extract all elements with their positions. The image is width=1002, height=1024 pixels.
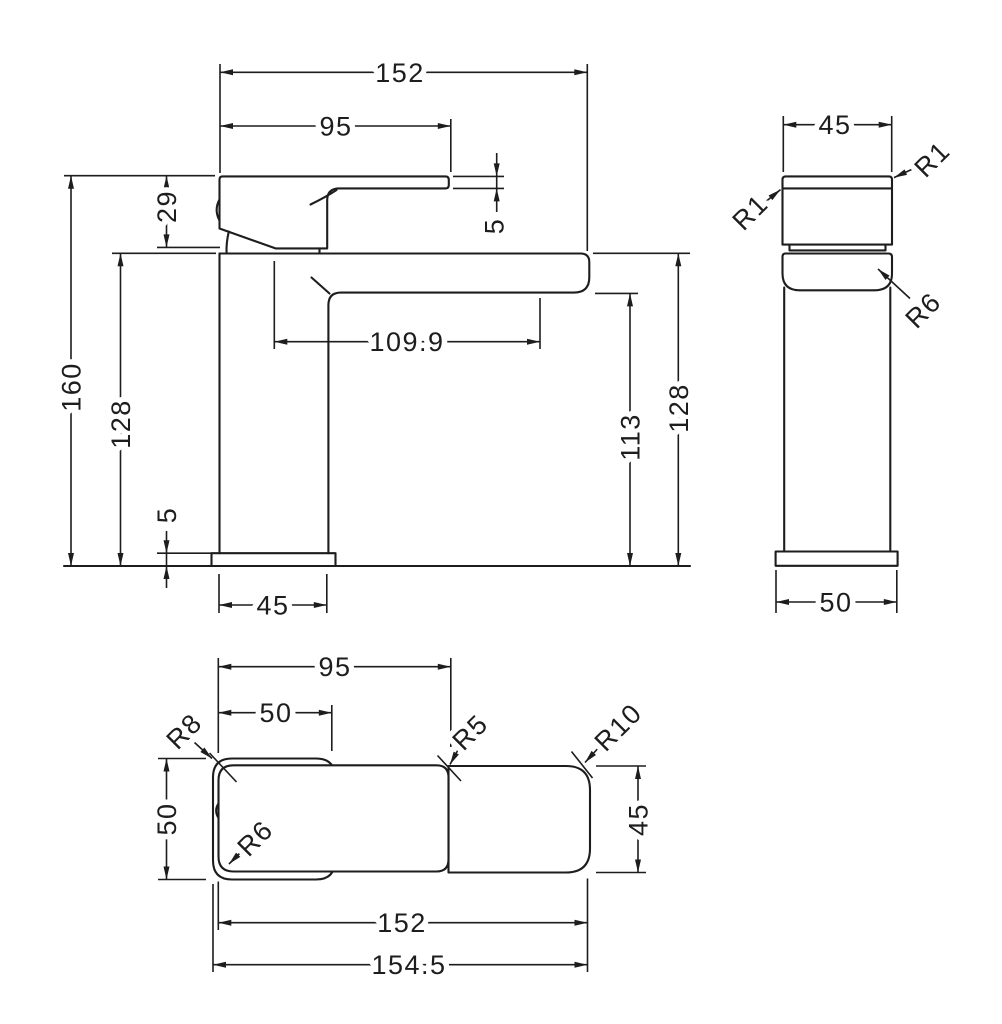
ext-front-base-5 xyxy=(157,553,212,566)
dim-front-lever-thickness: 5 xyxy=(480,218,510,235)
ext-front-lever-5 xyxy=(453,176,504,188)
leader-side-r6 xyxy=(878,269,910,299)
radius-side-r1-left: R1 xyxy=(726,188,774,236)
radius-plan-r5: R5 xyxy=(446,708,494,756)
dim-front-deck-height-left: 128 xyxy=(106,399,136,449)
leader-plan-r8 xyxy=(195,743,213,759)
front-view-dimensions: 152 95 5 29 160 128 5 45 xyxy=(57,58,694,621)
dim-plan-back-width: 50 xyxy=(152,802,182,835)
side-handle xyxy=(783,176,893,244)
leader-side-r1-right xyxy=(894,167,917,178)
front-body-edge-curve xyxy=(226,232,228,254)
front-deck-fillet-tick xyxy=(312,278,330,294)
dim-plan-handle-length: 95 xyxy=(318,652,351,682)
radius-side-r1-right: R1 xyxy=(908,135,956,183)
front-handle-body xyxy=(220,176,449,248)
dim-plan-spout-width: 45 xyxy=(624,803,654,836)
side-deck xyxy=(783,254,893,291)
dim-plan-grip-length: 50 xyxy=(259,698,292,728)
side-view-outline xyxy=(776,176,898,565)
dim-front-handle-length: 95 xyxy=(319,112,352,142)
dim-front-overall-width: 152 xyxy=(375,58,425,88)
dim-front-spout-clearance: 113 xyxy=(616,413,646,461)
dim-side-base-depth: 50 xyxy=(819,588,852,618)
technical-drawing-canvas: 152 95 5 29 160 128 5 45 xyxy=(0,0,1002,1024)
dim-side-handle-depth: 45 xyxy=(818,110,851,140)
ext-front-152 xyxy=(220,64,587,251)
dim-front-column-width: 45 xyxy=(256,591,289,621)
dim-plan-body-length: 152 xyxy=(377,908,427,938)
side-base-plate xyxy=(776,552,898,566)
faucet-dimension-drawing: 152 95 5 29 160 128 5 45 xyxy=(0,0,1002,1024)
dim-front-body-height: 29 xyxy=(152,190,182,223)
front-base-plate xyxy=(212,553,336,566)
plan-view-outline xyxy=(213,759,590,880)
leader-side-r1-left xyxy=(764,190,781,204)
side-column xyxy=(784,288,890,552)
front-lever-fillet-arc xyxy=(311,190,337,205)
dim-front-overall-height: 160 xyxy=(57,362,87,412)
radius-side-r6: R6 xyxy=(899,286,947,334)
plan-spout xyxy=(449,766,591,873)
dim-plan-overall-length: 154.5 xyxy=(371,950,446,980)
side-view-dimensions: 45 50 R1 R1 R6 xyxy=(726,110,956,617)
dim-front-deck-height-right: 128 xyxy=(664,383,694,433)
dim-front-base-thickness: 5 xyxy=(152,507,182,524)
dim-front-spout-reach: 109.9 xyxy=(369,327,444,357)
